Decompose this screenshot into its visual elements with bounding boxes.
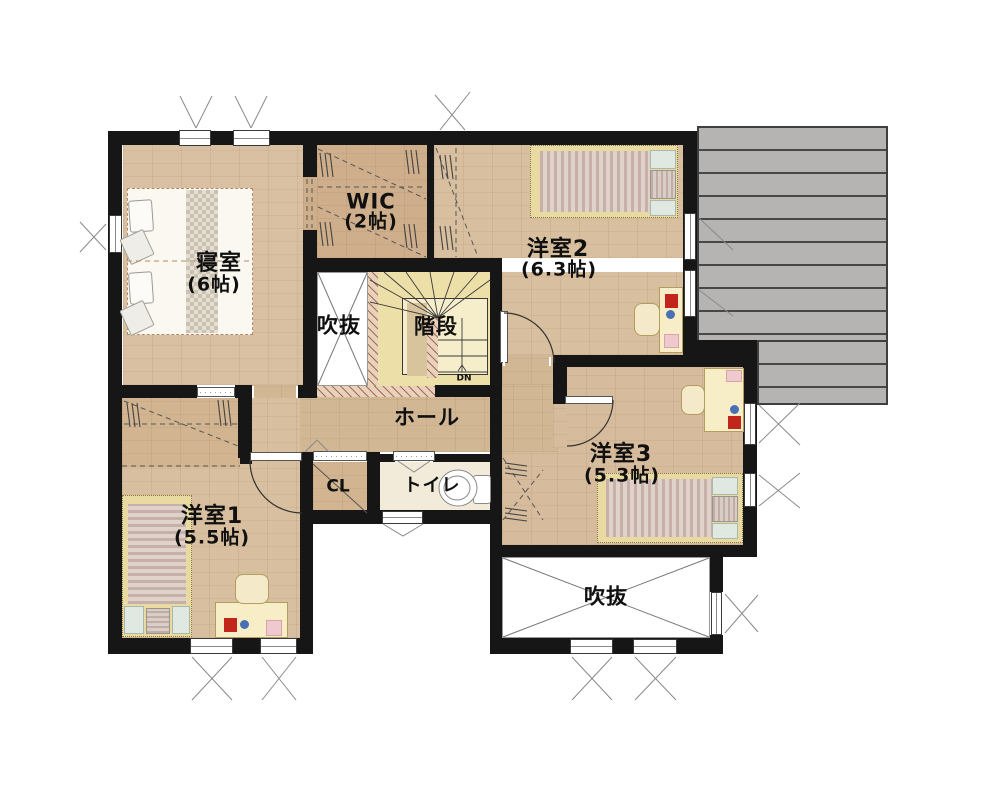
youshitsu1-red-bag [224, 618, 237, 632]
wall-youshitsu2-bottom [553, 355, 687, 367]
youshitsu1-door-leaf [250, 452, 302, 461]
tick-youshitsu3-right-1 [759, 403, 800, 445]
youshitsu2-bed-pillow [650, 170, 676, 199]
tick-bedroom-top-1 [180, 96, 212, 128]
bedroom-door-jamb-2 [296, 386, 298, 398]
youshitsu1-pink-item [266, 620, 282, 636]
tick-youshitsu1-bottom-1 [192, 657, 232, 700]
wall-bedroom-bottom-3 [298, 385, 317, 398]
void-center-label: 吹抜 [317, 316, 361, 337]
floor-plan: 寝室 (6帖) WIC (2帖) 洋室2 (6.3帖) 吹抜 階段 DN ホール… [0, 0, 1000, 785]
youshitsu2-bed-corner-2 [650, 200, 676, 216]
youshitsu1-blue-item [240, 620, 249, 629]
void-bottom-window-1 [570, 639, 613, 654]
tick-void-bottom-right [725, 594, 758, 633]
youshitsu1-chair [235, 574, 269, 604]
tick-youshitsu1-bottom-2 [262, 657, 296, 700]
wall-youshitsu3-right [743, 363, 757, 557]
tick-void-bottom-2 [635, 657, 676, 700]
wall-youshitsu1-right [300, 452, 313, 654]
youshitsu3-door-gap [553, 404, 567, 448]
stairs-railing-bottom [317, 386, 435, 397]
youshitsu2-door-leaf [500, 311, 508, 363]
youshitsu3-blue-item [730, 405, 739, 414]
youshitsu2-red-bag [665, 294, 678, 308]
youshitsu3-pink-item [726, 370, 742, 382]
void-bottom-right-window [711, 592, 722, 635]
wall-stairs-bottom [435, 385, 502, 397]
hall-label: ホール [394, 408, 460, 429]
youshitsu2-door-jamb-2 [549, 357, 551, 366]
bedroom-label: 寝室 [196, 253, 242, 275]
youshitsu3-right-window-2 [744, 473, 756, 507]
bedroom-door-jamb-1 [252, 386, 254, 398]
youshitsu2-right-window-2 [684, 270, 696, 317]
stairs-label: 階段 [414, 317, 458, 338]
wall-cl-toilet-divider [367, 452, 380, 517]
youshitsu3-bed-corner-1 [712, 477, 738, 495]
bedroom-size-label: (6帖) [187, 276, 241, 295]
youshitsu3-bed-corner-2 [712, 523, 738, 539]
youshitsu3-bed-mattress [606, 479, 712, 537]
youshitsu2-size-label: (6.3帖) [521, 261, 597, 280]
bedroom-top-window-1 [179, 130, 211, 146]
bedroom-pillow-1 [128, 199, 154, 233]
youshitsu1-bed-mattress [128, 504, 186, 604]
tick-void-bottom-1 [572, 657, 612, 700]
youshitsu2-chair [634, 303, 660, 336]
tick-bedroom-left [80, 222, 106, 252]
youshitsu1-bottom-window-1 [190, 638, 233, 654]
youshitsu3-chair [681, 385, 705, 415]
wic-label: WIC [346, 192, 395, 213]
youshitsu3-door-leaf [565, 396, 613, 404]
bedroom-left-window [109, 215, 122, 253]
youshitsu3-bed-pillow [712, 496, 738, 522]
youshitsu3-size-label: (5.3帖) [584, 467, 660, 486]
cl-sliding-door [313, 451, 367, 461]
youshitsu1-size-label: (5.5帖) [174, 529, 250, 548]
toilet-tank [473, 475, 491, 504]
youshitsu2-bed-mattress [540, 151, 650, 212]
youshitsu1-bed-corner-1 [124, 606, 144, 634]
void-bottom-window-2 [633, 639, 677, 654]
youshitsu3-floor-left [502, 452, 557, 545]
wall-toilet-top-2 [433, 454, 490, 462]
bedroom-closet-sliding-door [197, 387, 235, 397]
youshitsu3-right-window-1 [744, 403, 756, 445]
roof-deck-upper [697, 126, 888, 342]
cl-label: CL [326, 479, 349, 496]
youshitsu2-door-jamb-1 [503, 357, 505, 366]
stairs-railing-left [368, 272, 378, 396]
youshitsu2-blue-item [666, 310, 675, 319]
bedroom-top-window-2 [233, 130, 270, 146]
tick-bedroom-top-2 [235, 96, 267, 128]
toilet-window [382, 511, 423, 524]
youshitsu3-label: 洋室3 [590, 444, 652, 466]
toilet-sliding-door [393, 451, 435, 461]
wall-void-bottom-right-1 [710, 555, 723, 592]
youshitsu1-bed-corner-2 [172, 606, 190, 634]
roof-deck-lower [757, 340, 888, 405]
youshitsu1-bed-pillow [146, 608, 170, 634]
youshitsu1-label: 洋室1 [181, 506, 243, 528]
tick-youshitsu3-right-2 [759, 473, 800, 508]
wall-wic-bottom [303, 258, 502, 272]
youshitsu2-bed-corner-1 [650, 150, 676, 169]
youshitsu1-bottom-window-2 [260, 638, 297, 654]
wic-size-label: (2帖) [344, 213, 398, 232]
youshitsu3-red-bag [728, 416, 741, 429]
wall-closet1-right [238, 395, 252, 458]
tick-toilet-window [383, 524, 423, 536]
toilet-label: トイレ [404, 477, 461, 495]
void-bottom-label: 吹抜 [584, 587, 628, 608]
youshitsu2-pink-item [664, 334, 679, 348]
wall-bedroom-bottom-1 [110, 385, 197, 398]
tick-youshitsu2-top [435, 92, 470, 130]
wic-opening [303, 177, 317, 230]
stairs-dn-label: DN [456, 375, 471, 384]
wall-wic-right [427, 143, 434, 258]
youshitsu1-closet-floor [122, 398, 240, 467]
youshitsu2-right-window-1 [684, 213, 696, 260]
